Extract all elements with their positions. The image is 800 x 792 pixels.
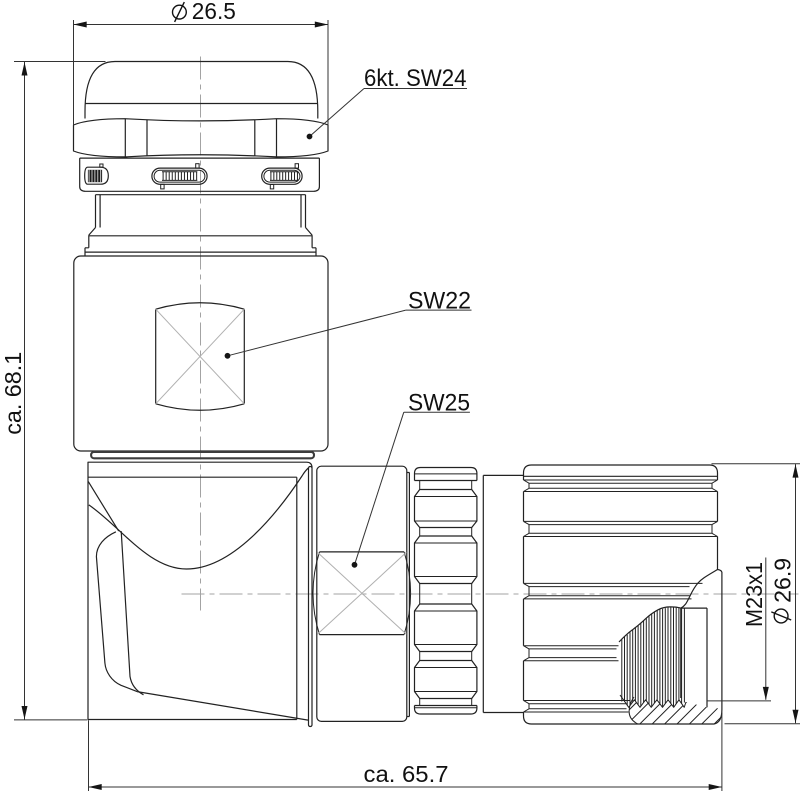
svg-text:ca. 65.7: ca. 65.7 [364,761,449,787]
svg-text:SW22: SW22 [408,287,471,314]
svg-text:6kt. SW24: 6kt. SW24 [364,65,467,92]
svg-text:26.9: 26.9 [769,558,795,603]
svg-text:ca. 68.1: ca. 68.1 [0,352,26,435]
svg-text:SW25: SW25 [408,389,470,416]
svg-text:26.5: 26.5 [192,0,236,24]
svg-text:M23x1: M23x1 [741,562,767,627]
